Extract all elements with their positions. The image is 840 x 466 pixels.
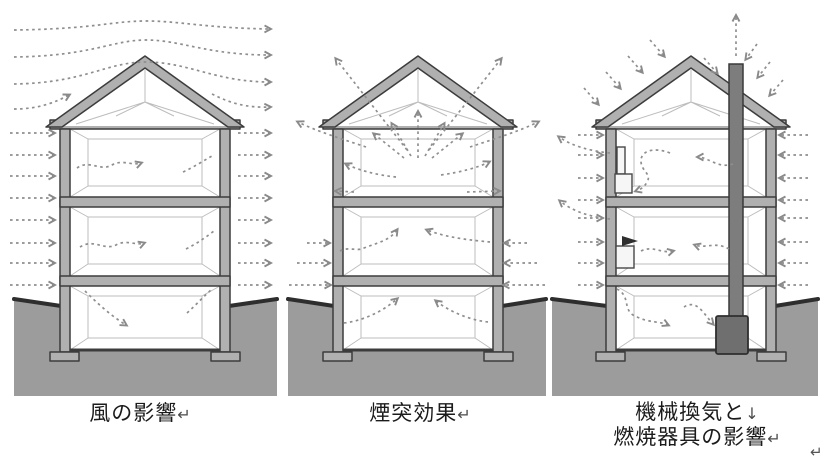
chimney [729,64,743,320]
caption-mechanical-line2: 燃焼器具の影響 [613,425,767,449]
caption-wind-text: 風の影響 [89,401,177,425]
caption-wind: 風の影響↵ [40,402,240,427]
ventilation-figure: 風の影響↵ 煙突効果↵ 機械換気と↓ 燃焼器具の影響↵ ↵ [0,0,840,466]
building-wind [46,56,244,361]
trailing-paragraph-mark: ↵ [810,443,823,461]
building-mechanical [592,56,790,361]
caption-mechanical: 機械換気と↓ 燃焼器具の影響↵ [577,401,817,450]
paragraph-mark: ↵ [767,429,780,448]
caption-stack: 煙突効果↵ [320,402,520,427]
line-break-mark: ↓ [745,404,758,423]
caption-stack-text: 煙突効果 [369,401,457,425]
caption-mechanical-line1: 機械換気と [635,400,745,424]
paragraph-mark: ↵ [457,405,470,424]
diagram-canvas [0,0,840,466]
stove [716,316,748,354]
paragraph-mark: ↵ [177,405,190,424]
building-stack [319,56,517,361]
